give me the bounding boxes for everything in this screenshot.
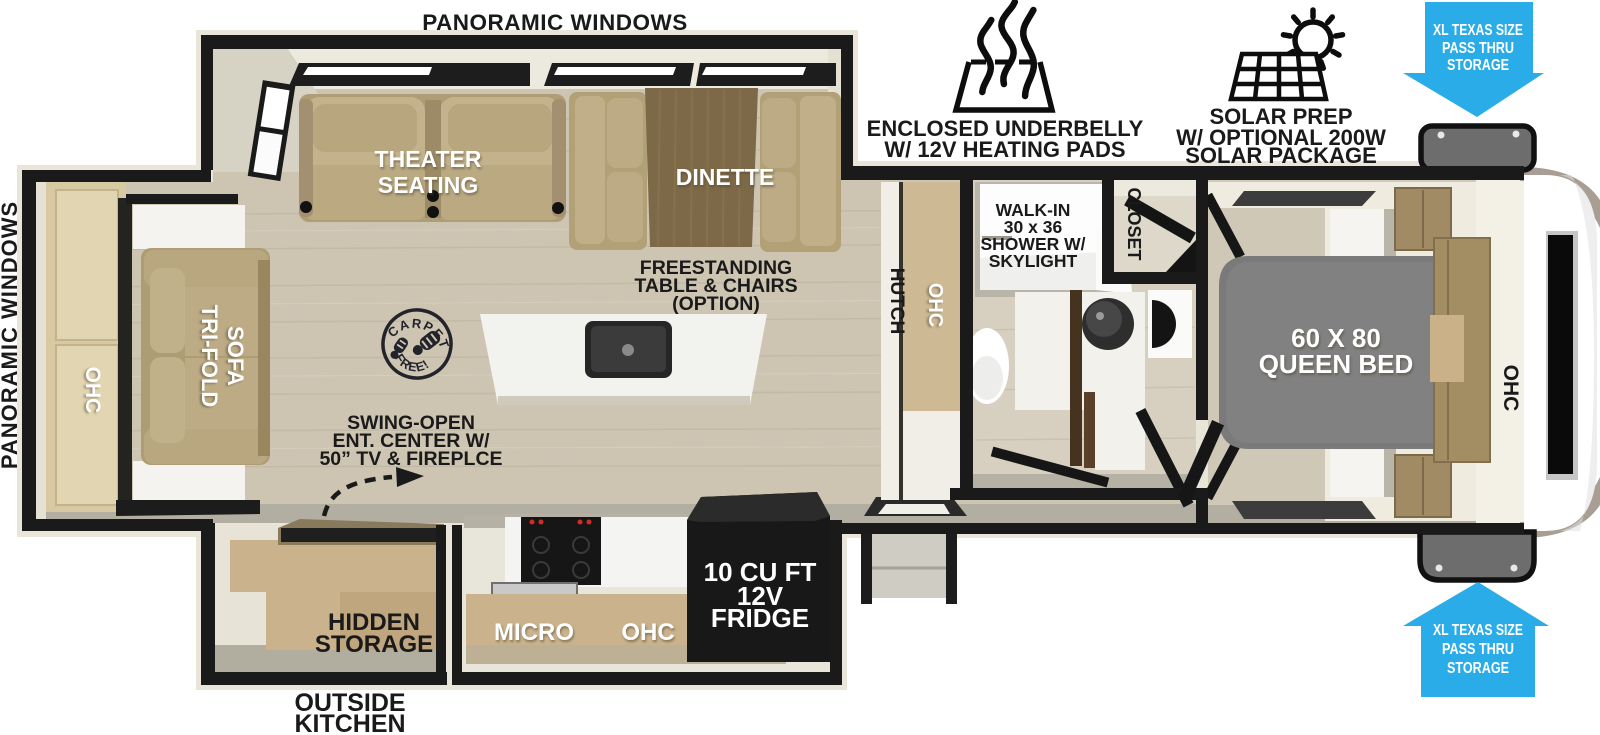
svg-text:QUEEN BED: QUEEN BED	[1259, 349, 1414, 379]
svg-text:PANORAMIC WINDOWS: PANORAMIC WINDOWS	[0, 201, 22, 469]
svg-text:PANORAMIC WINDOWS: PANORAMIC WINDOWS	[422, 10, 688, 35]
svg-text:XL TEXAS SIZE: XL TEXAS SIZE	[1433, 622, 1523, 639]
svg-text:SOLAR PACKAGE: SOLAR PACKAGE	[1185, 143, 1377, 168]
svg-text:STORAGE: STORAGE	[315, 631, 433, 658]
svg-text:OHC: OHC	[81, 367, 104, 414]
svg-text:CLOSET: CLOSET	[1124, 187, 1144, 260]
svg-text:OHC: OHC	[1499, 365, 1522, 412]
svg-text:KITCHEN: KITCHEN	[294, 710, 405, 735]
svg-text:SKYLIGHT: SKYLIGHT	[989, 251, 1078, 271]
svg-text:THEATER: THEATER	[375, 146, 482, 172]
svg-text:OHC: OHC	[924, 283, 946, 327]
svg-text:XL TEXAS SIZE: XL TEXAS SIZE	[1433, 22, 1523, 39]
svg-text:STORAGE: STORAGE	[1447, 660, 1509, 677]
svg-text:SOFA: SOFA	[223, 326, 248, 386]
svg-text:W/ 12V HEATING PADS: W/ 12V HEATING PADS	[884, 137, 1125, 162]
svg-text:STORAGE: STORAGE	[1447, 57, 1509, 74]
svg-text:SEATING: SEATING	[378, 172, 479, 198]
svg-text:FRIDGE: FRIDGE	[711, 603, 809, 633]
svg-text:DINETTE: DINETTE	[676, 164, 774, 190]
svg-text:PASS THRU: PASS THRU	[1442, 40, 1514, 57]
svg-text:OHC: OHC	[621, 619, 674, 646]
svg-text:(OPTION): (OPTION)	[672, 293, 760, 315]
svg-text:PASS THRU: PASS THRU	[1442, 641, 1514, 658]
svg-text:MICRO: MICRO	[494, 619, 574, 646]
svg-text:50” TV & FIREPLCE: 50” TV & FIREPLCE	[319, 448, 502, 470]
svg-text:TRI-FOLD: TRI-FOLD	[197, 305, 222, 408]
svg-text:HUTCH: HUTCH	[886, 268, 907, 335]
